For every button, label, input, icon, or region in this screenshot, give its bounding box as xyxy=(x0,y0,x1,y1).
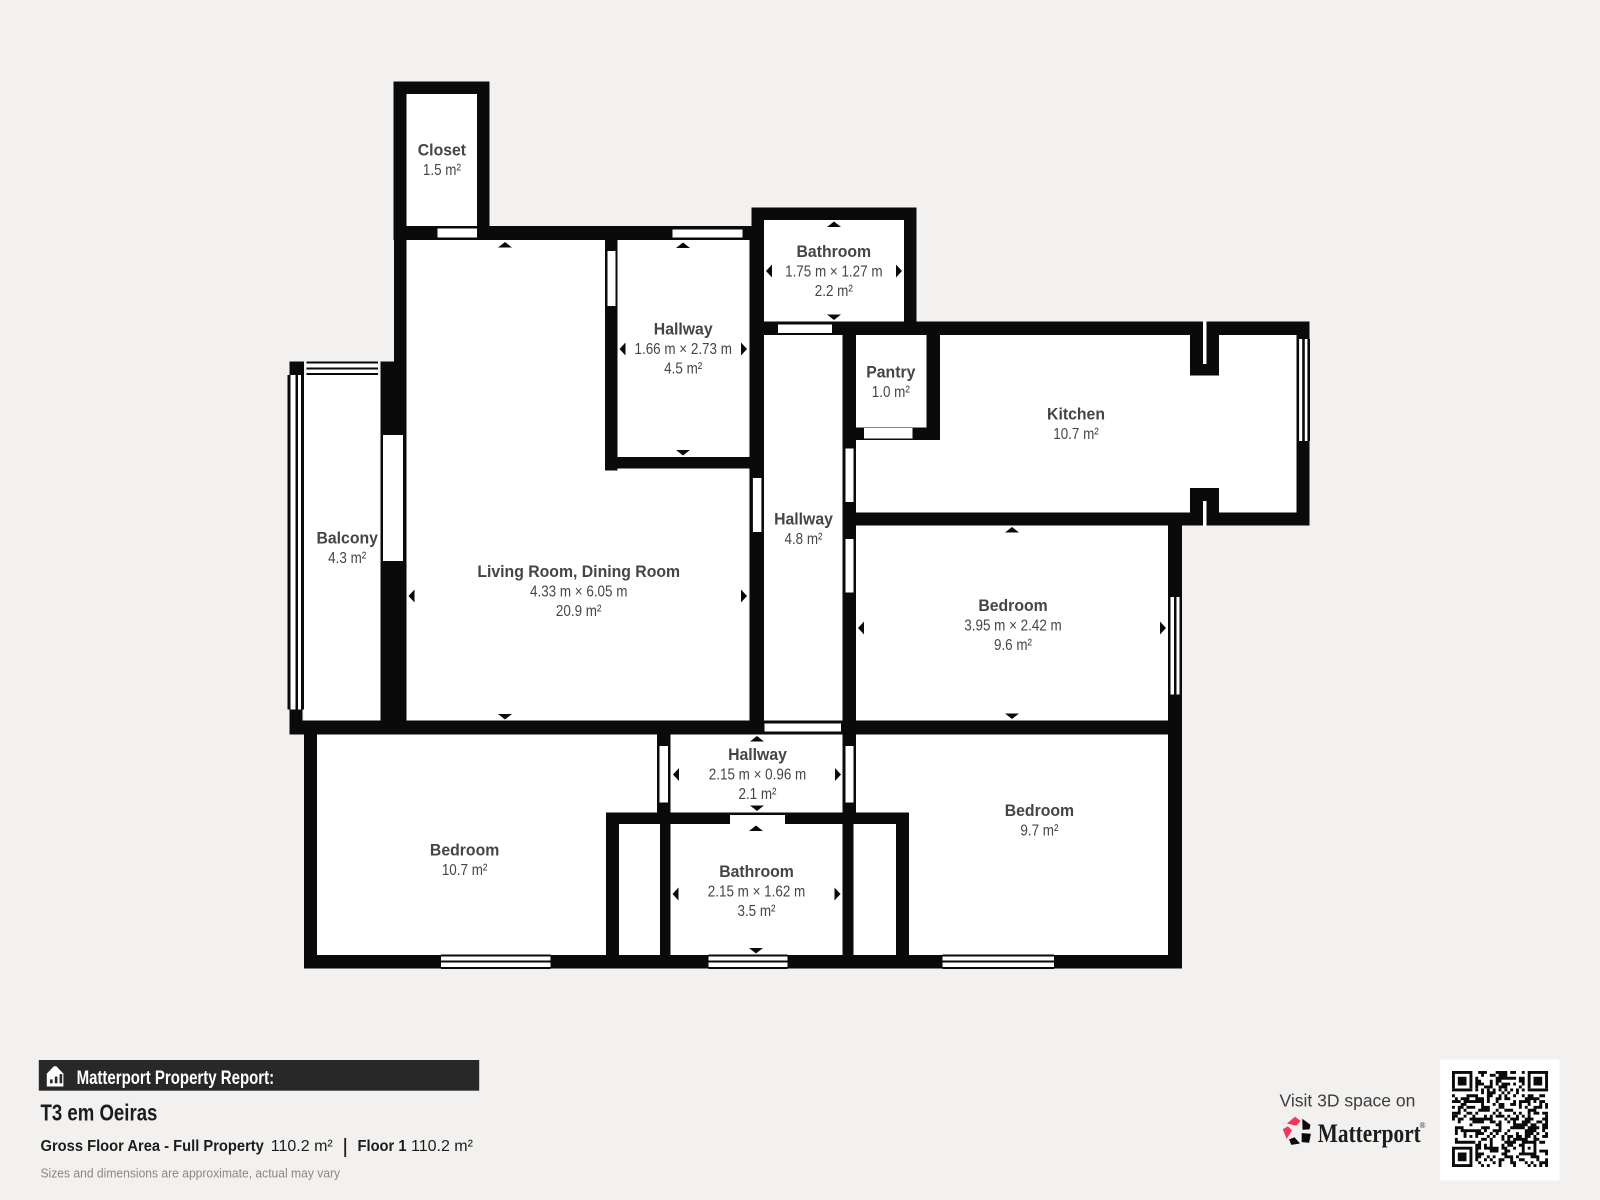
svg-text:Sizes and dimensions are appro: Sizes and dimensions are approximate, ac… xyxy=(41,1166,341,1180)
svg-text:Hallway: Hallway xyxy=(728,745,788,764)
svg-text:1.5 m²: 1.5 m² xyxy=(423,162,461,179)
svg-text:Bedroom: Bedroom xyxy=(978,597,1047,616)
svg-text:T3 em Oeiras: T3 em Oeiras xyxy=(41,1101,158,1126)
svg-text:4.8 m²: 4.8 m² xyxy=(784,531,822,548)
svg-text:10.7 m²: 10.7 m² xyxy=(442,862,488,879)
svg-text:3.95 m × 2.42 m: 3.95 m × 2.42 m xyxy=(964,618,1061,635)
svg-text:4.33 m × 6.05 m: 4.33 m × 6.05 m xyxy=(530,583,627,600)
svg-text:Bedroom: Bedroom xyxy=(1005,802,1074,821)
svg-text:2.2 m²: 2.2 m² xyxy=(815,283,853,300)
svg-text:2.1 m²: 2.1 m² xyxy=(738,786,776,803)
svg-text:110.2 m²: 110.2 m² xyxy=(411,1138,474,1155)
svg-text:Kitchen: Kitchen xyxy=(1047,405,1105,424)
svg-text:4.5 m²: 4.5 m² xyxy=(664,361,702,378)
svg-text:Living Room, Dining Room: Living Room, Dining Room xyxy=(477,562,680,581)
svg-text:1.0 m²: 1.0 m² xyxy=(872,384,910,401)
svg-text:9.7 m²: 9.7 m² xyxy=(1020,823,1058,840)
svg-text:110.2 m²: 110.2 m² xyxy=(271,1138,334,1155)
svg-text:4.3 m²: 4.3 m² xyxy=(328,550,366,567)
svg-text:Hallway: Hallway xyxy=(774,510,834,529)
svg-text:Bathroom: Bathroom xyxy=(719,862,794,881)
svg-text:9.6 m²: 9.6 m² xyxy=(994,637,1032,654)
svg-text:1.66 m × 2.73 m: 1.66 m × 2.73 m xyxy=(634,341,731,358)
svg-text:Pantry: Pantry xyxy=(866,363,916,382)
svg-text:10.7 m²: 10.7 m² xyxy=(1053,426,1099,443)
svg-text:2.15 m × 1.62 m: 2.15 m × 1.62 m xyxy=(708,883,805,900)
svg-text:Hallway: Hallway xyxy=(654,320,714,339)
svg-text:Matterport Property Report:: Matterport Property Report: xyxy=(77,1068,275,1089)
svg-text:Visit 3D space on: Visit 3D space on xyxy=(1280,1090,1416,1110)
svg-text:Bedroom: Bedroom xyxy=(430,841,499,860)
svg-text:3.5 m²: 3.5 m² xyxy=(737,903,775,920)
svg-text:Closet: Closet xyxy=(418,141,467,160)
svg-text:Floor 1: Floor 1 xyxy=(358,1137,407,1155)
svg-text:Bathroom: Bathroom xyxy=(796,242,871,261)
svg-text:1.75 m × 1.27 m: 1.75 m × 1.27 m xyxy=(785,263,882,280)
svg-text:20.9 m²: 20.9 m² xyxy=(556,603,602,620)
svg-text:Gross Floor Area - Full Proper: Gross Floor Area - Full Property xyxy=(41,1137,265,1155)
svg-text:Balcony: Balcony xyxy=(316,529,378,548)
svg-text:Matterport: Matterport xyxy=(1318,1120,1421,1148)
svg-text:2.15 m × 0.96 m: 2.15 m × 0.96 m xyxy=(709,766,806,783)
svg-text:®: ® xyxy=(1420,1121,1426,1130)
